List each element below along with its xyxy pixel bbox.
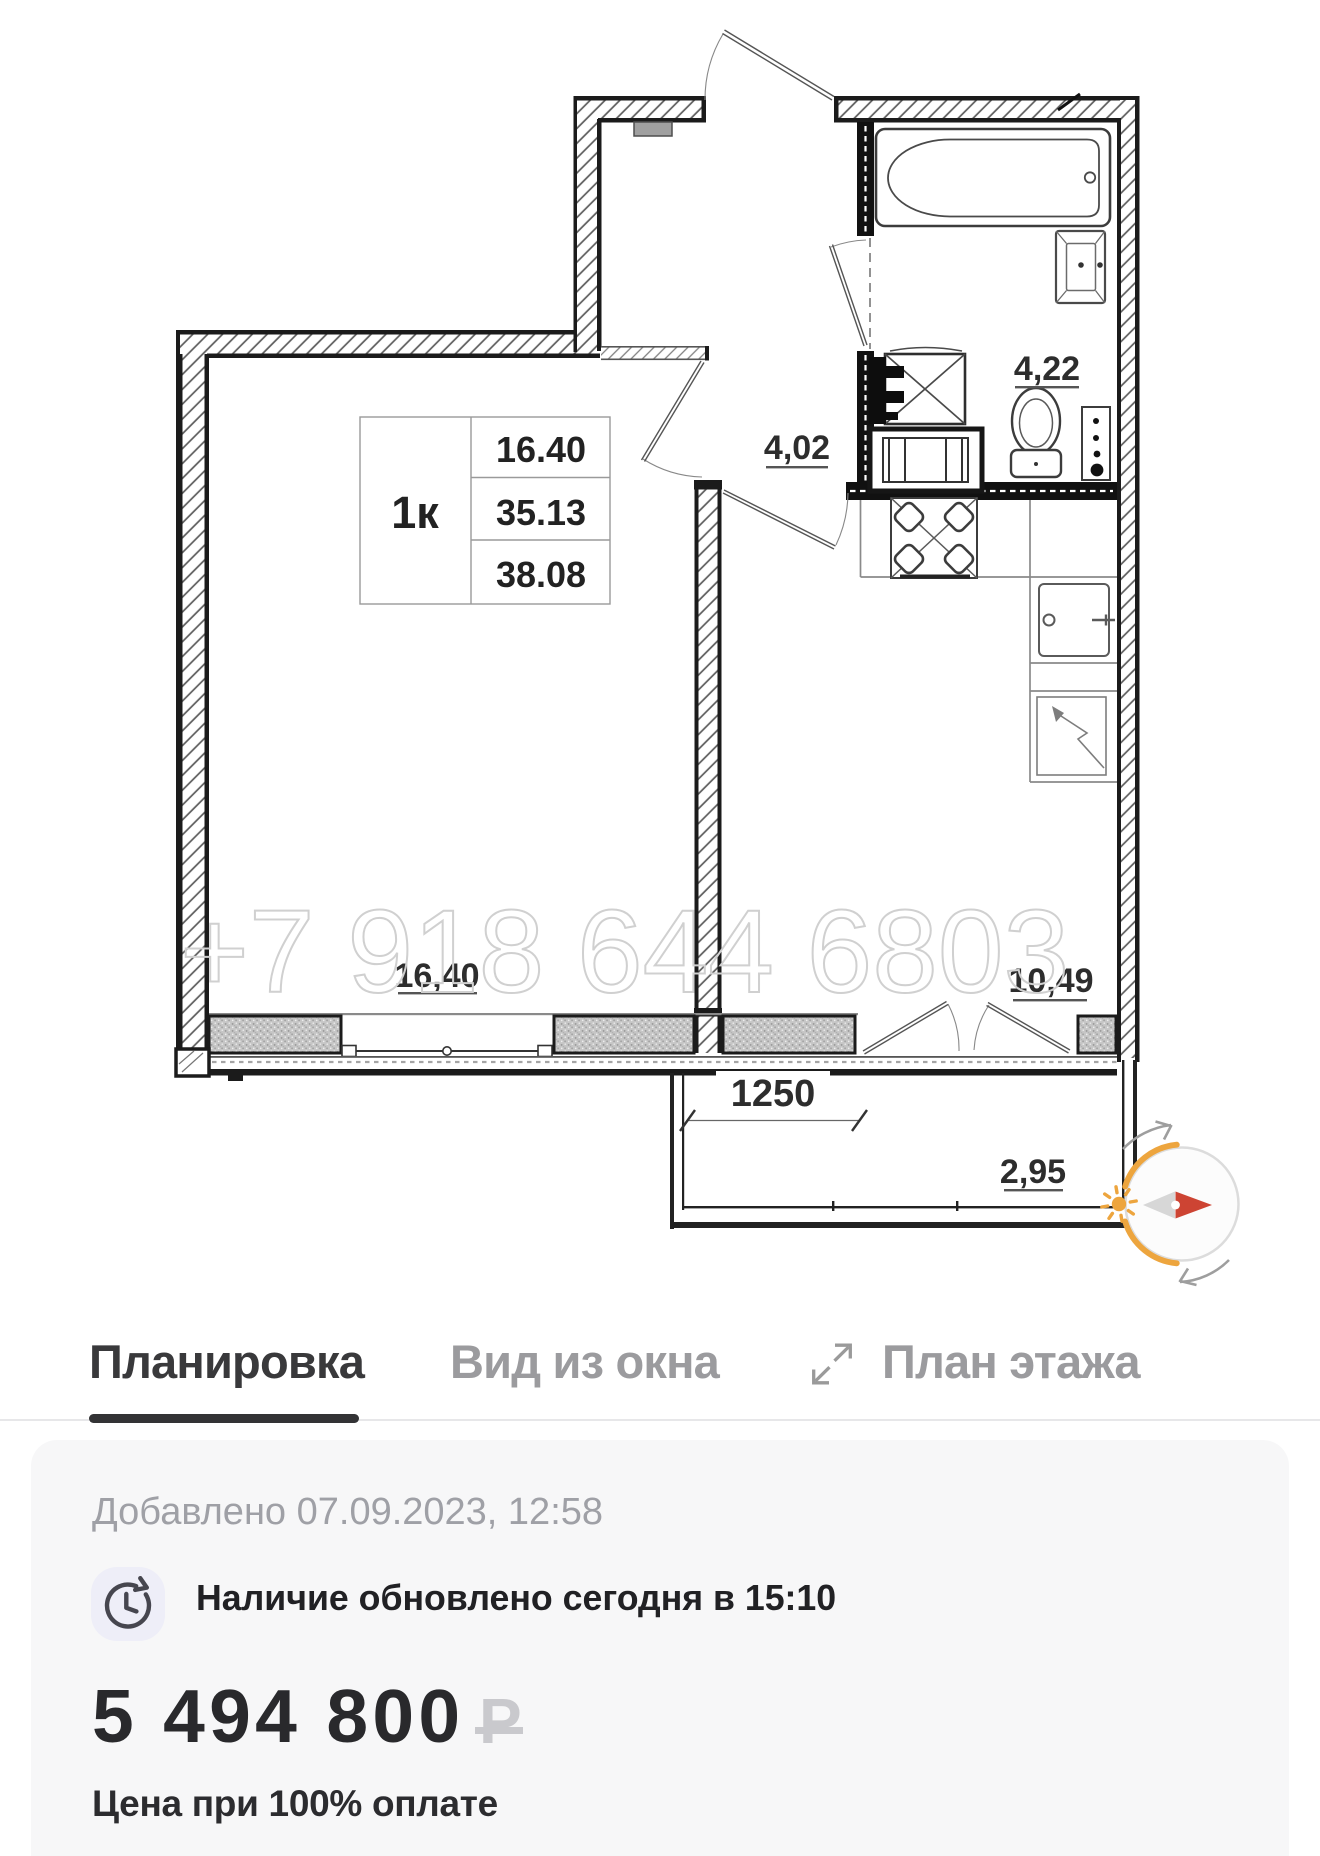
svg-text:16.40: 16.40: [496, 429, 586, 470]
svg-text:38.08: 38.08: [496, 554, 586, 595]
svg-text:1к: 1к: [391, 487, 439, 538]
svg-text:1250: 1250: [731, 1073, 816, 1115]
svg-text:35.13: 35.13: [496, 492, 586, 533]
svg-text:4,02: 4,02: [764, 429, 830, 467]
svg-text:2,95: 2,95: [1000, 1153, 1066, 1191]
svg-text:4,22: 4,22: [1014, 350, 1080, 388]
